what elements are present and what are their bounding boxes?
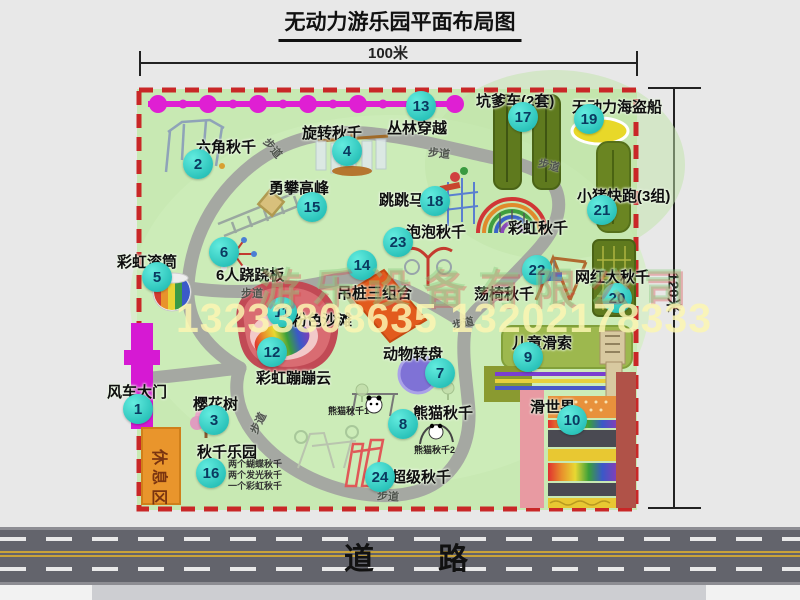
marker-16: 16 xyxy=(196,458,226,488)
label-rest-area: 休息区 xyxy=(149,449,173,487)
label-panda-swing: 熊猫秋千 xyxy=(413,402,473,423)
marker-1: 1 xyxy=(123,394,153,424)
label-bouncing-cloud: 彩虹蹦蹦云 xyxy=(256,367,331,388)
marker-18: 18 xyxy=(420,186,450,216)
road-label: 道路 xyxy=(344,534,532,578)
label-bubble-swing: 泡泡秋千 xyxy=(406,221,466,242)
walkway-label: 步道 xyxy=(427,144,451,162)
swing-paradise-notes: 两个蝴蝶秋千 两个发光秋千 一个彩虹秋千 xyxy=(228,459,282,492)
label-panda-swing-2: 熊猫秋千2 xyxy=(414,443,455,456)
label-jumping-horse: 跳跳马 xyxy=(379,189,424,210)
marker-7: 7 xyxy=(425,358,455,388)
marker-23: 23 xyxy=(383,227,413,257)
marker-10: 10 xyxy=(557,405,587,435)
marker-6: 6 xyxy=(209,237,239,267)
marker-2: 2 xyxy=(183,149,213,179)
marker-19: 19 xyxy=(574,104,604,134)
marker-13: 13 xyxy=(406,91,436,121)
marker-4: 4 xyxy=(332,136,362,166)
marker-8: 8 xyxy=(388,409,418,439)
label-panda-swing-1: 熊猫秋千1 xyxy=(328,404,369,417)
park-layout-plan: 无动力游乐园平面布局图 100米 120米 xyxy=(0,0,800,600)
watermark-phone: 13233808635 13202178333 xyxy=(176,295,712,342)
marker-9: 9 xyxy=(513,342,543,372)
marker-24: 24 xyxy=(365,462,395,492)
label-super-swing: 超级秋千 xyxy=(391,466,451,487)
swing-paradise-note-2: 两个发光秋千 xyxy=(228,470,282,481)
marker-5: 5 xyxy=(142,262,172,292)
marker-17: 17 xyxy=(508,102,538,132)
label-rainbow-swing: 彩虹秋千 xyxy=(508,217,568,238)
marker-21: 21 xyxy=(587,195,617,225)
marker-3: 3 xyxy=(199,405,229,435)
swing-paradise-note-1: 两个蝴蝶秋千 xyxy=(228,459,282,470)
marker-15: 15 xyxy=(297,192,327,222)
swing-paradise-note-3: 一个彩虹秋千 xyxy=(228,481,282,492)
